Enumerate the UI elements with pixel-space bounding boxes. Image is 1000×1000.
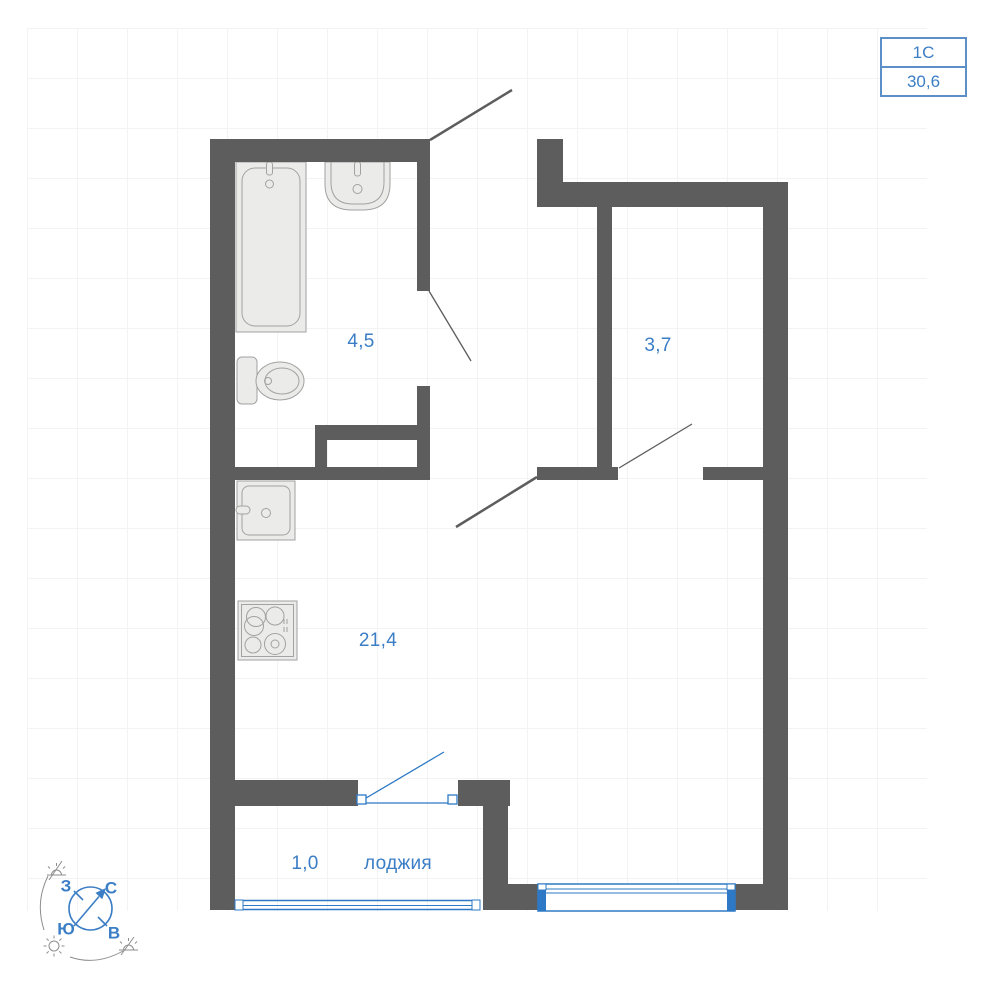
toilet [237, 357, 304, 404]
sun-path-arc-bottom [70, 951, 123, 960]
compass-south-label: Ю [57, 920, 75, 939]
stove [238, 601, 297, 660]
wall-bathroom-bottom [235, 467, 430, 480]
bathtub [236, 162, 306, 332]
wall-hall-bottom-right [703, 467, 788, 480]
bathroom-door-swing [429, 291, 471, 361]
wall-loggia-top-left [235, 780, 358, 806]
sunset-icon-southeast [119, 937, 138, 955]
compass-tick-southeast [98, 917, 107, 926]
wall-loggia-top-right [458, 780, 510, 806]
hall-area-label: 3,7 [644, 335, 671, 357]
entry-door-swing [430, 90, 512, 140]
unit-info-badge: 1С 30,6 [880, 37, 967, 97]
sun-path-arc-left [40, 876, 48, 930]
wall-hall-left [597, 207, 612, 480]
compass-tick-northwest [74, 891, 83, 900]
loggia-name-label: лоджия [364, 853, 432, 875]
kitchen-sink [236, 481, 295, 540]
wall-bottom-right-of-window [735, 884, 788, 910]
loggia-area-label: 1,0 [291, 853, 318, 875]
loggia-window [235, 900, 480, 910]
wall-shaft-top [315, 425, 430, 440]
floor-plan-drawing: З С Ю В [0, 0, 1000, 1000]
wall-right [763, 207, 788, 910]
wall-hall-bottom-left [537, 467, 618, 480]
balcony-door-swing [361, 752, 444, 801]
main-window [538, 884, 735, 911]
compass-west-label: З [61, 877, 72, 896]
north-arrow-shaft [74, 897, 99, 927]
unit-total-area: 30,6 [882, 68, 965, 95]
wall-bottom-left-of-window [483, 884, 538, 910]
wall-entry-stub [537, 139, 563, 182]
living-area-label: 21,4 [359, 630, 397, 652]
compass-east-label: В [108, 924, 120, 943]
bathroom-area-label: 4,5 [347, 331, 374, 353]
wall-bathroom-right-upper [417, 162, 430, 291]
balcony-door [357, 752, 457, 804]
wash-basin [325, 162, 390, 210]
floor-plan: З С Ю В 4,5 3,7 21,4 1,0 лоджия 1С 30,6 [0, 0, 1000, 1000]
wall-top-right [537, 182, 788, 207]
living-door-swing [456, 477, 537, 527]
wall-left [210, 139, 235, 910]
compass-north-label: С [105, 879, 117, 898]
wall-top-bathroom [210, 139, 430, 162]
sun-icon-southwest [44, 936, 65, 957]
unit-plan-type: 1С [882, 39, 965, 68]
compass: З С Ю В [40, 861, 138, 960]
hall-door-swing [619, 424, 692, 468]
